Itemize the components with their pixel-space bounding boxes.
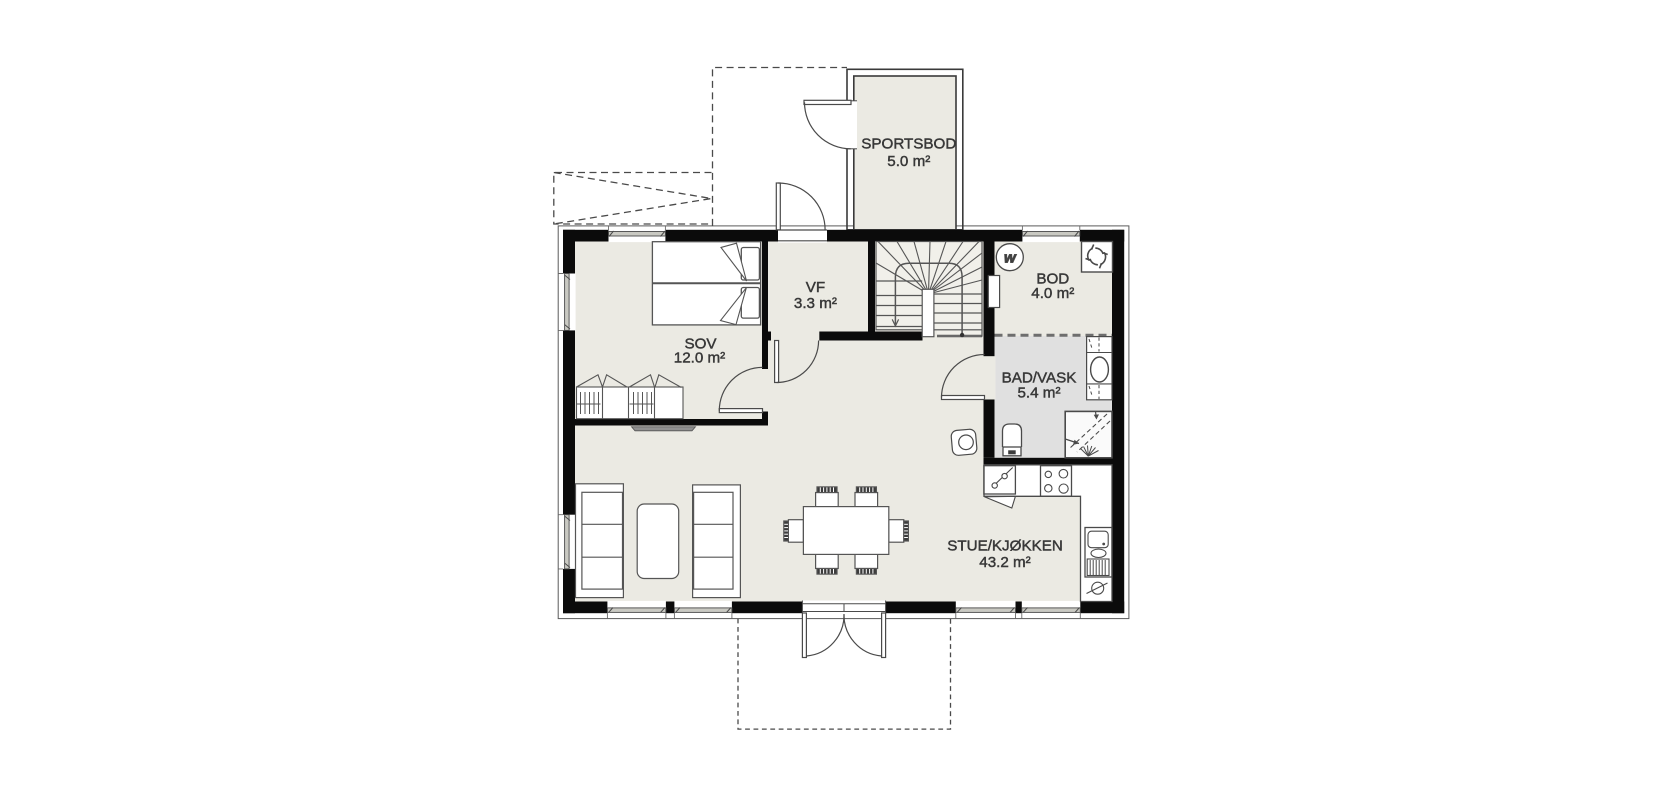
svg-text:5.0 m²: 5.0 m² [887,153,930,170]
svg-text:VF: VF [806,279,825,296]
svg-text:43.2 m²: 43.2 m² [979,554,1031,571]
svg-text:12.0 m²: 12.0 m² [674,350,726,367]
svg-text:SPORTSBOD: SPORTSBOD [861,136,956,153]
svg-text:5.4 m²: 5.4 m² [1017,385,1060,402]
svg-text:w: w [1004,250,1017,267]
svg-text:STUE/KJØKKEN: STUE/KJØKKEN [947,538,1063,555]
svg-text:3.3 m²: 3.3 m² [794,295,837,312]
svg-text:4.0 m²: 4.0 m² [1031,285,1074,302]
